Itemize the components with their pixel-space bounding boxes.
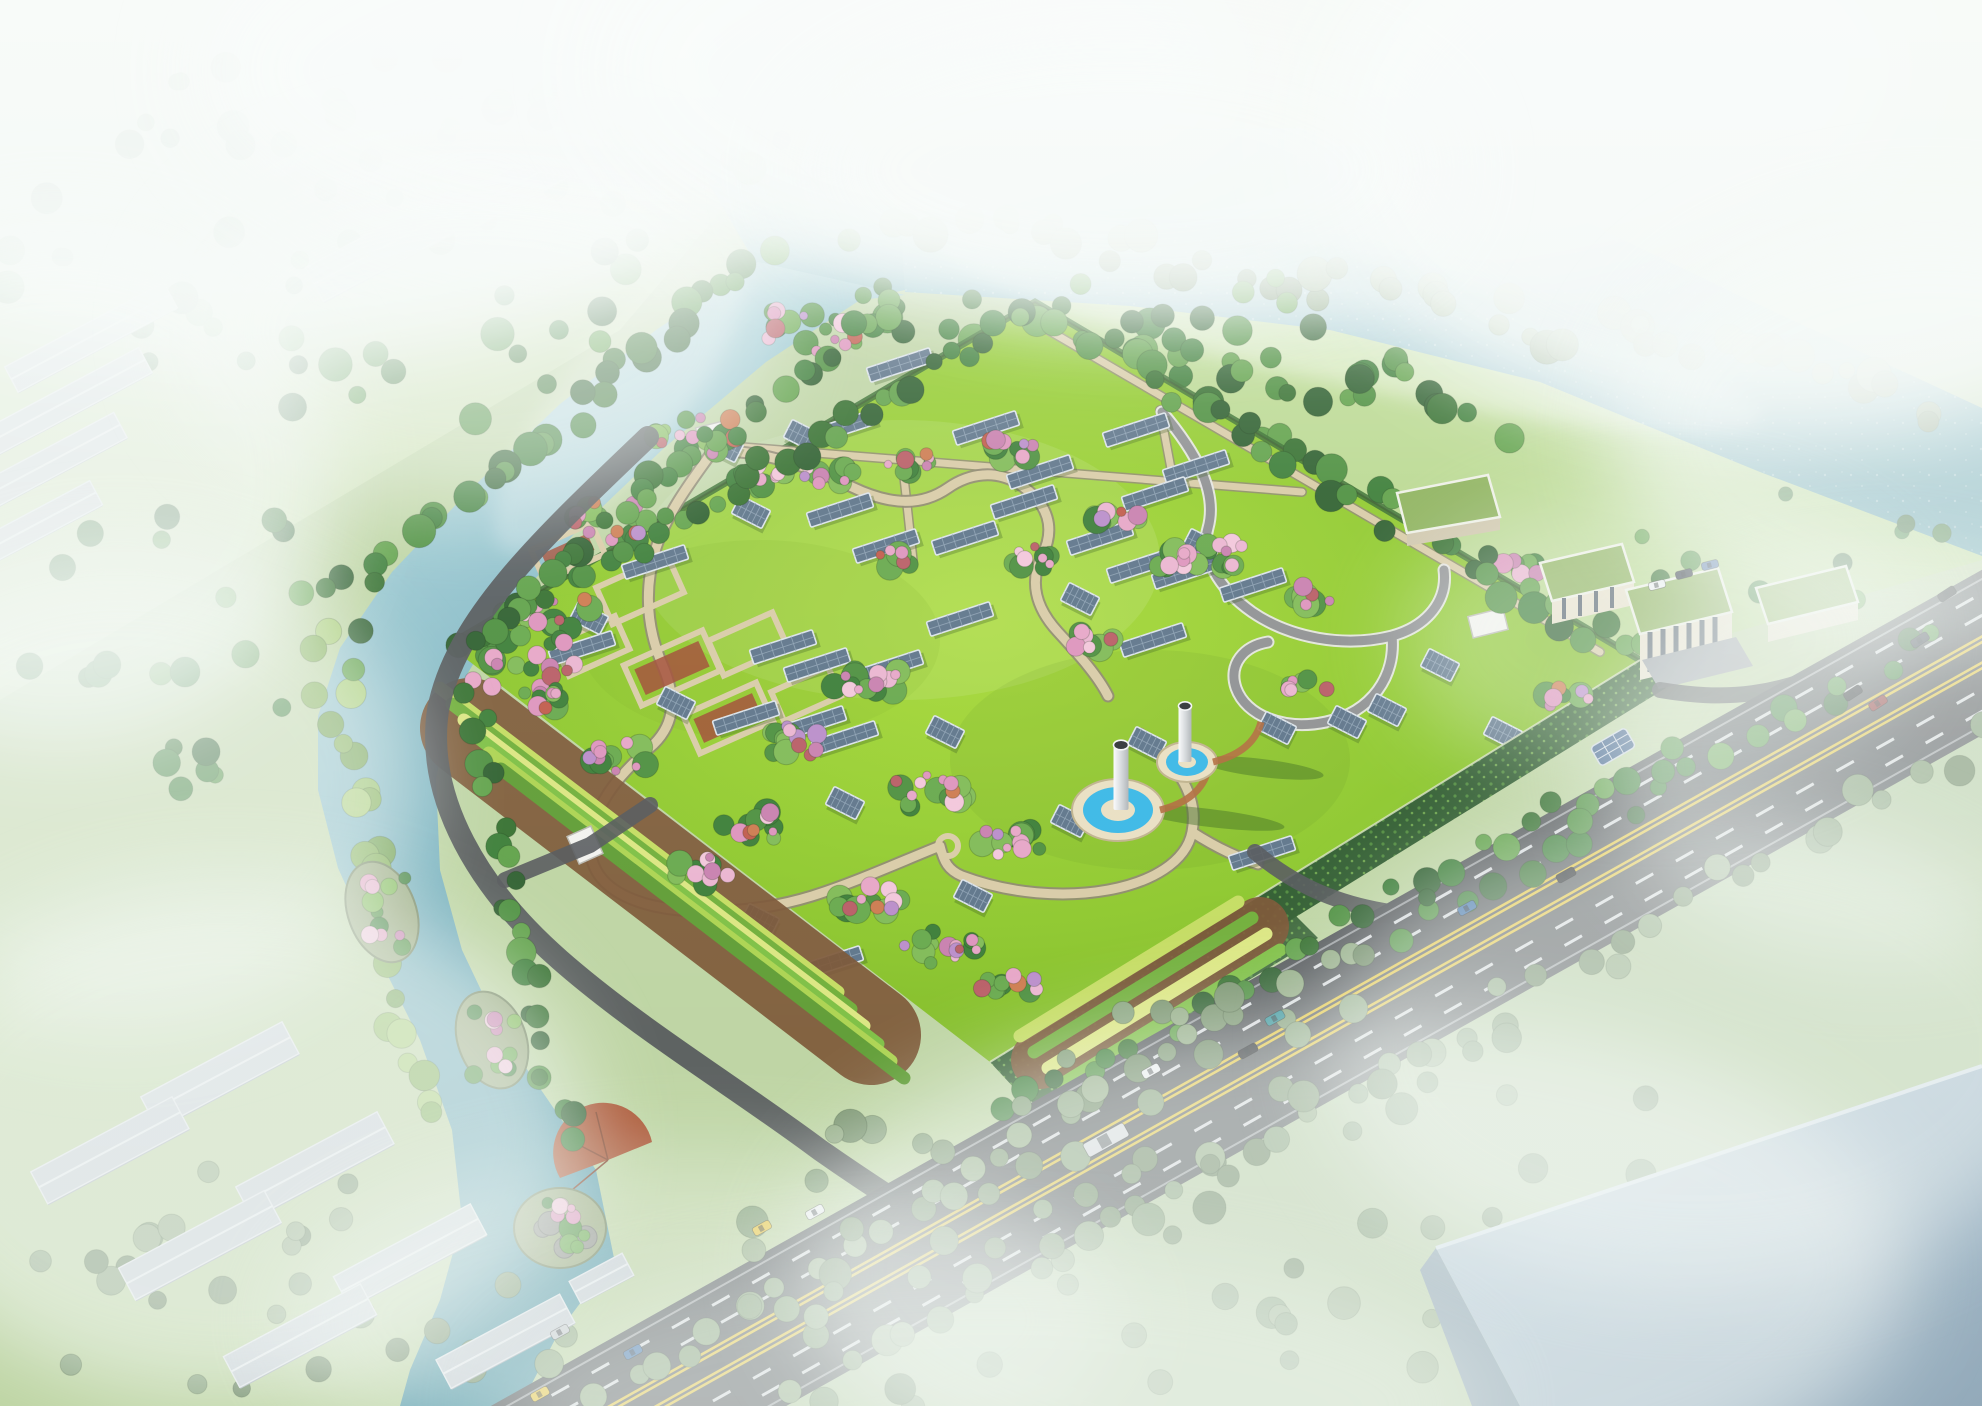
atmospheric-haze (0, 0, 1982, 1406)
aerial-rendering-canvas: { "meta": { "scene_label": "Aerial archi… (0, 0, 1982, 1406)
aerial-site-rendering (0, 0, 1982, 1406)
